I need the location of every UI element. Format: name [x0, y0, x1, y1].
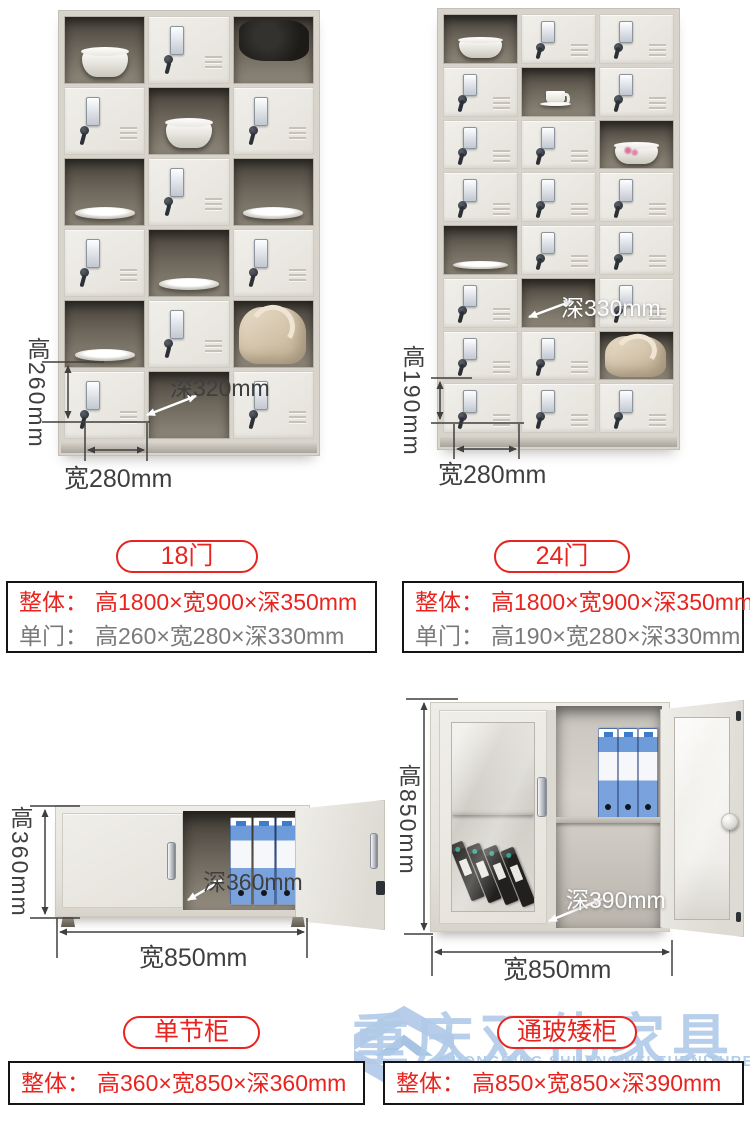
- locker-compartment-open: [521, 67, 596, 117]
- name-card-slot: [463, 127, 477, 149]
- binder-black: [500, 847, 535, 908]
- vent-slots-icon: [493, 94, 510, 112]
- bowl-item: [459, 39, 501, 58]
- dim-depth-label: 深360mm: [203, 863, 303, 897]
- bowl-item: [166, 122, 212, 148]
- plate-item: [243, 207, 303, 219]
- door-handle: [537, 777, 547, 817]
- glass-door-closed: [439, 710, 547, 924]
- locker-door: [233, 229, 314, 297]
- locker-compartment-open: [64, 158, 145, 226]
- spec-box-24: 整体：高1800×宽900×深350mm 单门：高190×宽280×深330mm: [402, 581, 744, 653]
- locker-door: [443, 383, 518, 433]
- spec-box-18: 整体：高1800×宽900×深350mm 单门：高260×宽280×深330mm: [6, 581, 377, 653]
- locker-compartment-open: [443, 14, 518, 64]
- key-icon: [164, 62, 171, 75]
- cup-item: [546, 91, 565, 104]
- name-card-slot: [463, 74, 477, 96]
- cabinet-foot: [61, 917, 75, 927]
- dim-height-label: 高260mm: [20, 337, 54, 449]
- vent-slots-icon: [649, 200, 666, 218]
- dim-width-label: 宽850mm: [139, 938, 247, 974]
- key-icon: [248, 133, 255, 146]
- locker-door: [148, 158, 229, 226]
- spec-box-glass: 整体：高850×宽850×深390mm: [383, 1061, 744, 1105]
- locker-door: [521, 225, 596, 275]
- locker-door: [64, 87, 145, 155]
- locker-compartment-open: [64, 300, 145, 368]
- vent-slots-icon: [289, 408, 306, 426]
- locker-compartment-open: [233, 16, 314, 84]
- binder-black: [483, 845, 518, 906]
- locker-compartment-open: [64, 16, 145, 84]
- product-title-pill-single: 单节柜: [123, 1016, 260, 1049]
- locker-compartment-open: [599, 331, 674, 381]
- name-card-slot: [541, 127, 555, 149]
- cloth-item: [239, 20, 309, 61]
- plate-item: [453, 261, 509, 270]
- name-card-slot: [541, 232, 555, 254]
- vent-slots-icon: [571, 252, 588, 270]
- hinge: [736, 711, 741, 721]
- name-card-slot: [619, 21, 633, 43]
- vent-slots-icon: [289, 266, 306, 284]
- name-card-slot: [619, 179, 633, 201]
- key-icon: [248, 275, 255, 288]
- bag-item: [239, 307, 306, 364]
- door-knob: [721, 813, 738, 830]
- vent-slots-icon: [571, 358, 588, 376]
- locker-door: [599, 383, 674, 433]
- spec-line-overall: 整体：高850×宽850×深390mm: [396, 1063, 742, 1104]
- binder-blue: [618, 728, 638, 819]
- vent-slots-icon: [289, 124, 306, 142]
- dim-depth-label: 深390mm: [566, 881, 666, 915]
- dim-height-label: 高850mm: [391, 764, 425, 876]
- plate-item: [159, 278, 219, 290]
- locker-door: [599, 225, 674, 275]
- locker-door: [443, 278, 518, 328]
- key-icon: [164, 204, 171, 217]
- product-title-pill-24: 24门: [494, 540, 630, 573]
- locker-door: [148, 16, 229, 84]
- name-card-slot: [541, 21, 555, 43]
- vent-slots-icon: [649, 252, 666, 270]
- glass-pane: [451, 722, 535, 912]
- vent-slots-icon: [649, 41, 666, 59]
- name-card-slot: [170, 310, 184, 340]
- vent-slots-icon: [205, 195, 222, 213]
- vent-slots-icon: [120, 124, 137, 142]
- dim-depth-label: 深330mm: [561, 289, 661, 323]
- product-spec-sheet: 重庆双伟家具 CHONGQING SHUANGWEI FURNITURE: [0, 0, 750, 1133]
- name-card-slot: [463, 285, 477, 307]
- product-title-pill-18: 18门: [116, 540, 258, 573]
- locker-compartment-open: [443, 225, 518, 275]
- locker-door: [599, 172, 674, 222]
- bowl-item: [82, 51, 128, 77]
- vent-slots-icon: [493, 147, 510, 165]
- locker-door: [521, 120, 596, 170]
- name-card-slot: [541, 179, 555, 201]
- vent-slots-icon: [120, 266, 137, 284]
- bowl-flower-item: [615, 145, 657, 164]
- vent-slots-icon: [205, 337, 222, 355]
- vent-slots-icon: [571, 411, 588, 429]
- locker-door: [64, 371, 145, 439]
- locker-door: [599, 14, 674, 64]
- cabinet-foot: [291, 917, 305, 927]
- name-card-slot: [170, 26, 184, 56]
- shelf: [556, 817, 662, 823]
- locker-compartment-open: [599, 120, 674, 170]
- name-card-slot: [463, 179, 477, 201]
- open-door: [295, 800, 385, 930]
- key-icon: [248, 417, 255, 430]
- vent-slots-icon: [571, 147, 588, 165]
- name-card-slot: [463, 338, 477, 360]
- door-handle: [370, 833, 378, 869]
- spec-line-overall: 整体：高1800×宽900×深350mm: [415, 585, 742, 619]
- locker-door: [599, 67, 674, 117]
- locker-door: [443, 331, 518, 381]
- locker-door: [521, 14, 596, 64]
- locker-door: [148, 300, 229, 368]
- key-icon: [80, 417, 87, 430]
- product-title-pill-glass: 通玻矮柜: [497, 1016, 637, 1049]
- name-card-slot: [619, 74, 633, 96]
- dim-width-label: 宽280mm: [64, 459, 172, 495]
- name-card-slot: [86, 97, 100, 127]
- binder-black: [466, 843, 501, 904]
- vent-slots-icon: [649, 94, 666, 112]
- key-icon: [376, 881, 385, 895]
- vent-slots-icon: [205, 53, 222, 71]
- name-card-slot: [619, 390, 633, 412]
- binder-blue: [638, 728, 658, 819]
- name-card-slot: [541, 338, 555, 360]
- vent-slots-icon: [571, 41, 588, 59]
- name-card-slot: [170, 168, 184, 198]
- locker-door: [443, 172, 518, 222]
- vent-slots-icon: [571, 200, 588, 218]
- hinge: [736, 912, 741, 922]
- vent-slots-icon: [493, 200, 510, 218]
- dim-height-label: 高190mm: [395, 345, 429, 457]
- name-card-slot: [463, 390, 477, 412]
- name-card-slot: [86, 239, 100, 269]
- dim-width-label: 宽280mm: [438, 455, 546, 491]
- locker-door: [443, 67, 518, 117]
- key-icon: [80, 133, 87, 146]
- binder-black: [451, 841, 485, 902]
- locker-compartment-open: [233, 300, 314, 368]
- dim-width-label: 宽850mm: [503, 950, 611, 986]
- plate-item: [75, 349, 135, 361]
- dim-height-label: 高360mm: [3, 806, 37, 918]
- vent-slots-icon: [493, 411, 510, 429]
- door-handle: [167, 842, 176, 880]
- center-stile: [547, 710, 556, 924]
- spec-line-door: 单门：高260×宽280×深330mm: [19, 619, 375, 653]
- locker-compartment-open: [148, 229, 229, 297]
- vent-slots-icon: [649, 411, 666, 429]
- glass-door-open: [660, 700, 744, 937]
- bag-item: [605, 336, 666, 377]
- name-card-slot: [86, 381, 100, 411]
- vent-slots-icon: [493, 358, 510, 376]
- locker-door: [64, 229, 145, 297]
- name-card-slot: [254, 97, 268, 127]
- vent-slots-icon: [493, 305, 510, 323]
- spec-line-overall: 整体：高1800×宽900×深350mm: [19, 585, 375, 619]
- key-icon: [80, 275, 87, 288]
- locker-door: [521, 331, 596, 381]
- vent-slots-icon: [120, 408, 137, 426]
- spec-line-overall: 整体：高360×宽850×深360mm: [21, 1063, 363, 1104]
- locker-compartment-open: [148, 87, 229, 155]
- dim-depth-label: 深320mm: [170, 369, 270, 403]
- locker-24-photo: [437, 8, 680, 450]
- spec-line-door: 单门：高190×宽280×深330mm: [415, 619, 742, 653]
- name-card-slot: [541, 390, 555, 412]
- locker-door: [521, 172, 596, 222]
- name-card-slot: [619, 232, 633, 254]
- spec-box-single: 整体：高360×宽850×深360mm: [8, 1061, 365, 1105]
- locker-door: [521, 383, 596, 433]
- locker-compartment-open: [233, 158, 314, 226]
- key-icon: [164, 346, 171, 359]
- plate-item: [75, 207, 135, 219]
- locker-door: [443, 120, 518, 170]
- binder-blue: [598, 728, 618, 819]
- name-card-slot: [254, 239, 268, 269]
- locker-door: [233, 87, 314, 155]
- sliding-door: [62, 813, 183, 908]
- shelf: [452, 811, 534, 815]
